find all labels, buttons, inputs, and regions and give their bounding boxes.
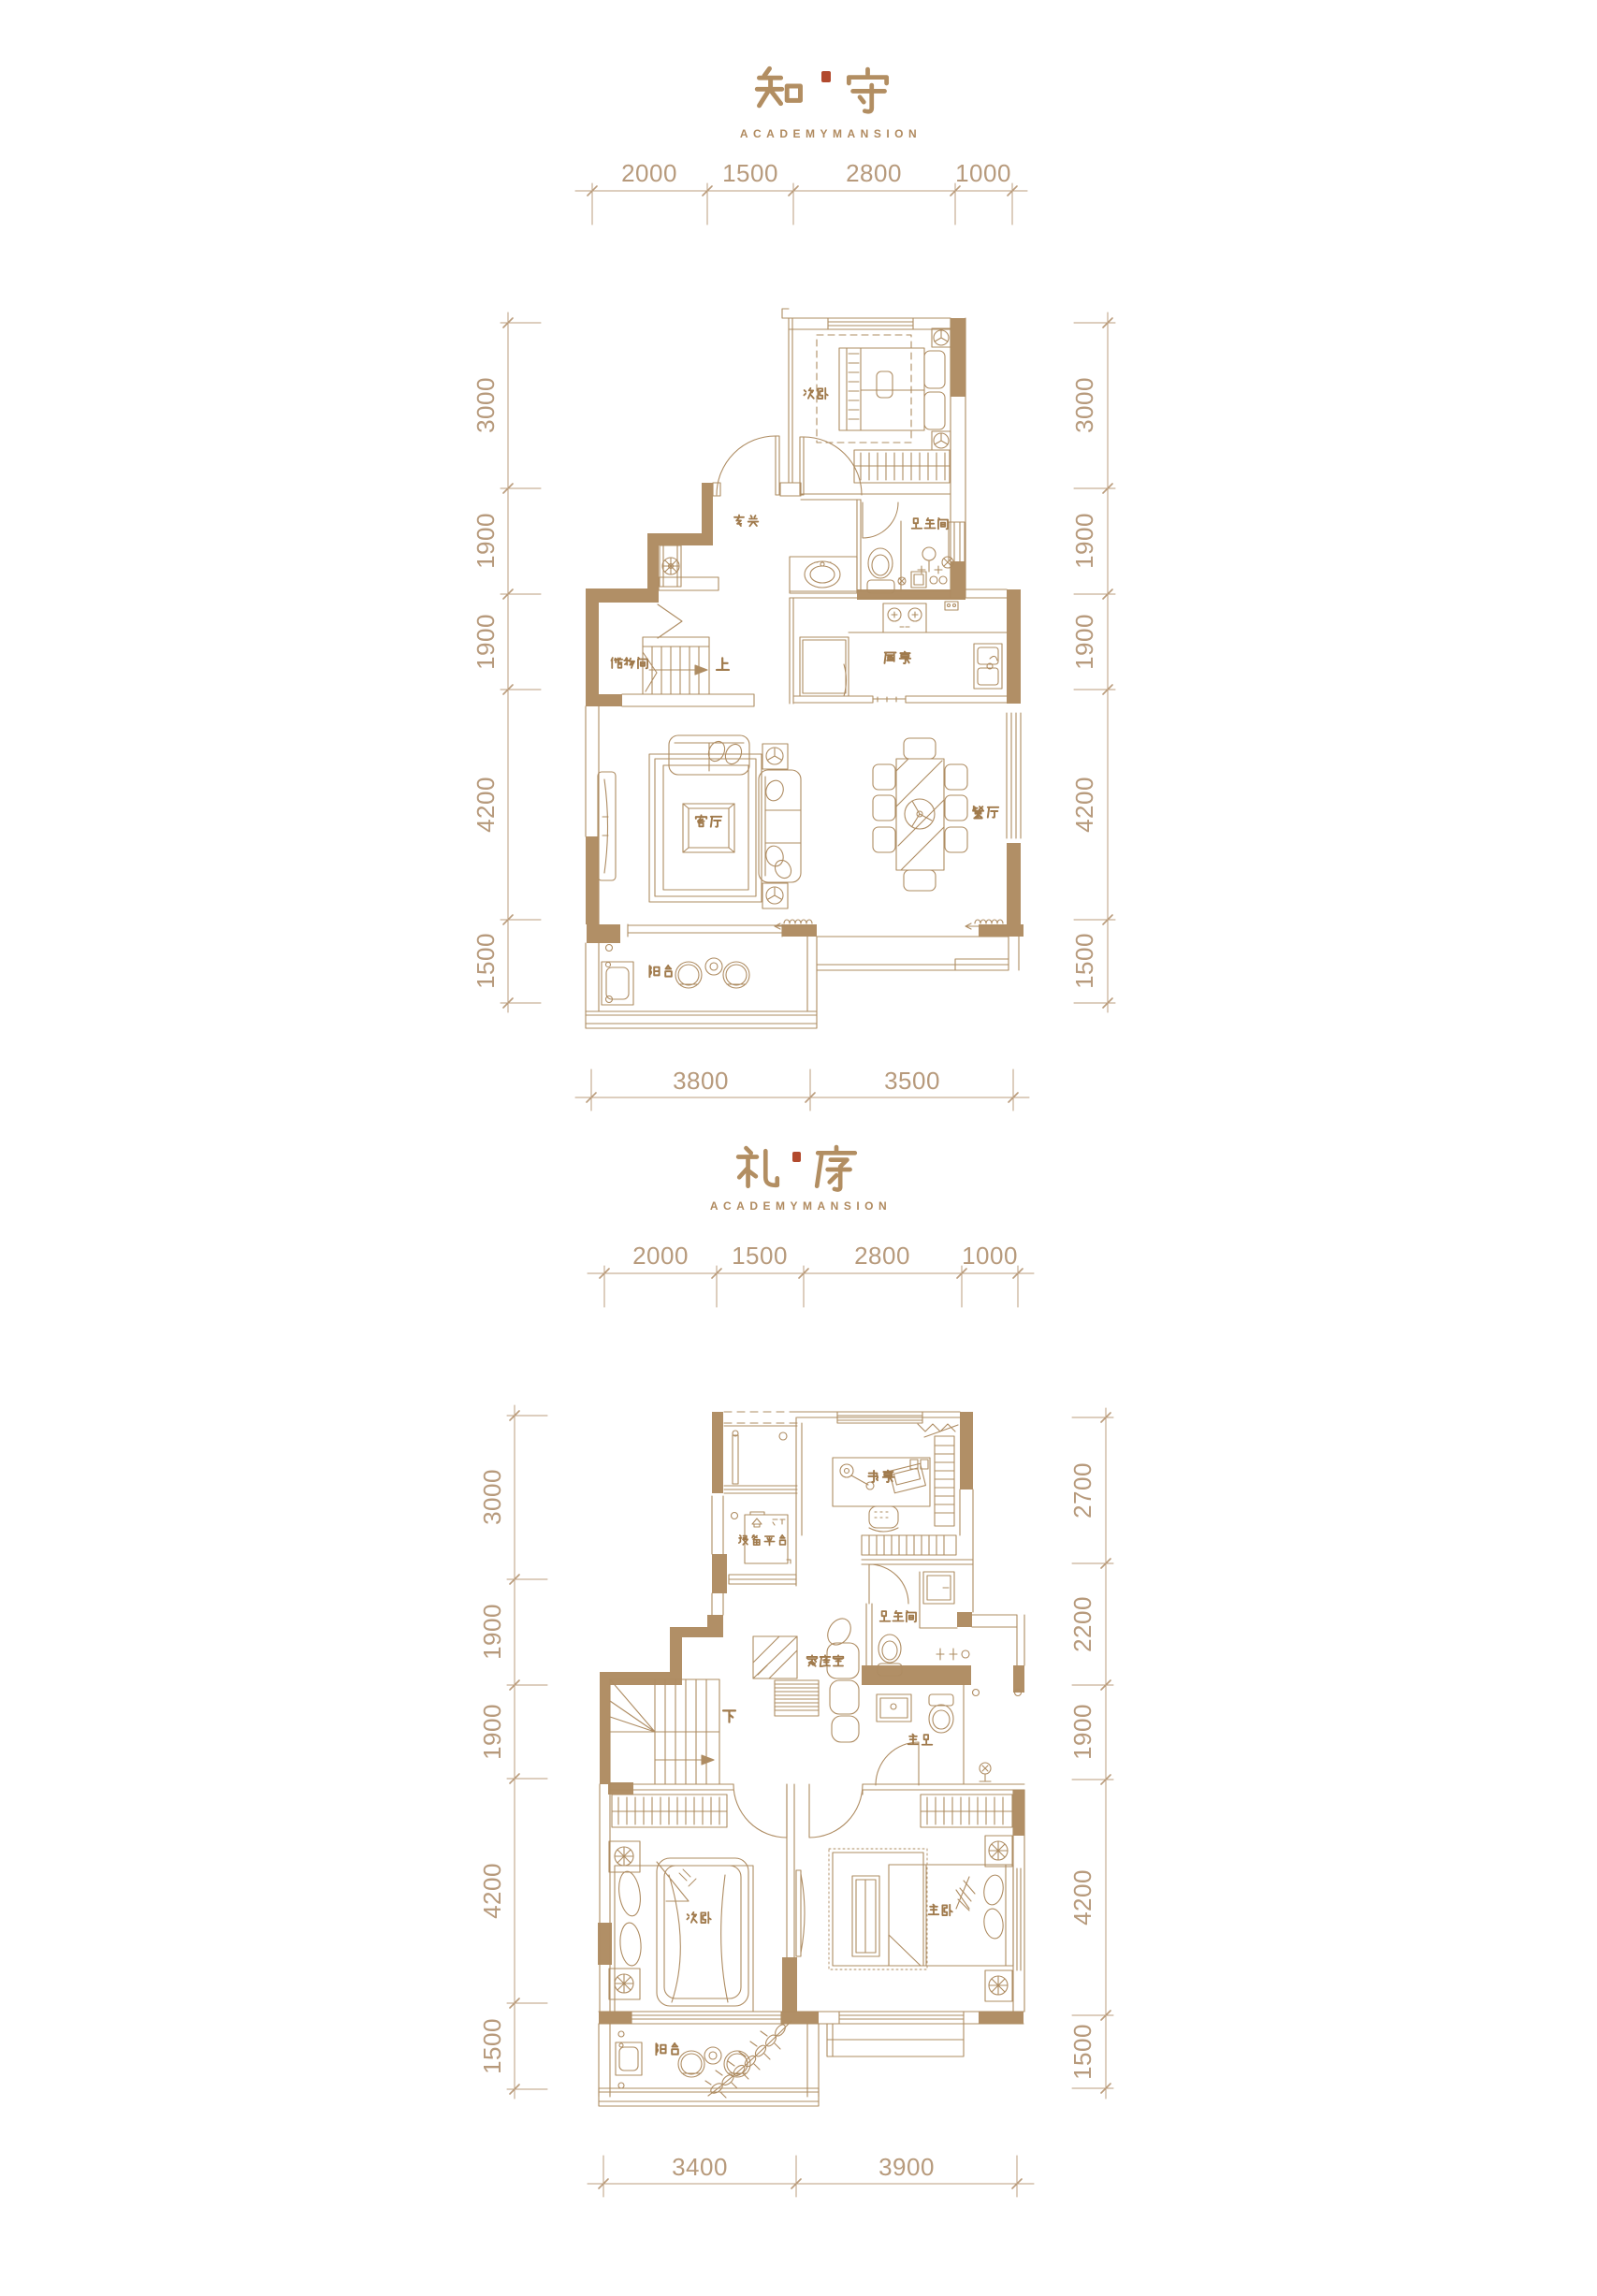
svg-text:1900: 1900: [1070, 614, 1098, 670]
svg-text:2000: 2000: [621, 159, 677, 187]
svg-text:3500: 3500: [884, 1067, 940, 1095]
svg-text:1000: 1000: [962, 1242, 1018, 1270]
svg-text:4200: 4200: [1070, 777, 1098, 833]
svg-text:ACADEMYMANSION: ACADEMYMANSION: [710, 1199, 892, 1213]
svg-text:4200: 4200: [472, 777, 500, 833]
svg-text:1900: 1900: [472, 614, 500, 670]
svg-text:4200: 4200: [478, 1863, 506, 1919]
svg-text:1500: 1500: [722, 159, 778, 187]
svg-text:1500: 1500: [478, 2018, 506, 2074]
svg-text:3900: 3900: [878, 2153, 935, 2181]
svg-text:3000: 3000: [472, 377, 500, 433]
svg-text:3800: 3800: [673, 1067, 729, 1095]
svg-text:1500: 1500: [732, 1242, 788, 1270]
svg-text:3400: 3400: [672, 2153, 728, 2181]
svg-text:4200: 4200: [1068, 1869, 1096, 1925]
svg-text:2200: 2200: [1068, 1596, 1096, 1652]
svg-text:2700: 2700: [1068, 1462, 1096, 1519]
svg-text:1500: 1500: [1068, 2024, 1096, 2080]
svg-text:3000: 3000: [478, 1469, 506, 1525]
svg-text:3000: 3000: [1070, 377, 1098, 433]
svg-text:1500: 1500: [1070, 933, 1098, 989]
svg-text:1900: 1900: [1068, 1704, 1096, 1760]
svg-text:1900: 1900: [1070, 513, 1098, 569]
svg-text:2000: 2000: [632, 1242, 689, 1270]
svg-text:1900: 1900: [472, 513, 500, 569]
svg-text:2800: 2800: [846, 159, 902, 187]
svg-text:1000: 1000: [955, 159, 1011, 187]
svg-text:ACADEMYMANSION: ACADEMYMANSION: [740, 127, 922, 140]
svg-text:1500: 1500: [472, 933, 500, 989]
svg-text:2800: 2800: [854, 1242, 910, 1270]
svg-text:1900: 1900: [478, 1704, 506, 1760]
svg-text:1900: 1900: [478, 1604, 506, 1660]
